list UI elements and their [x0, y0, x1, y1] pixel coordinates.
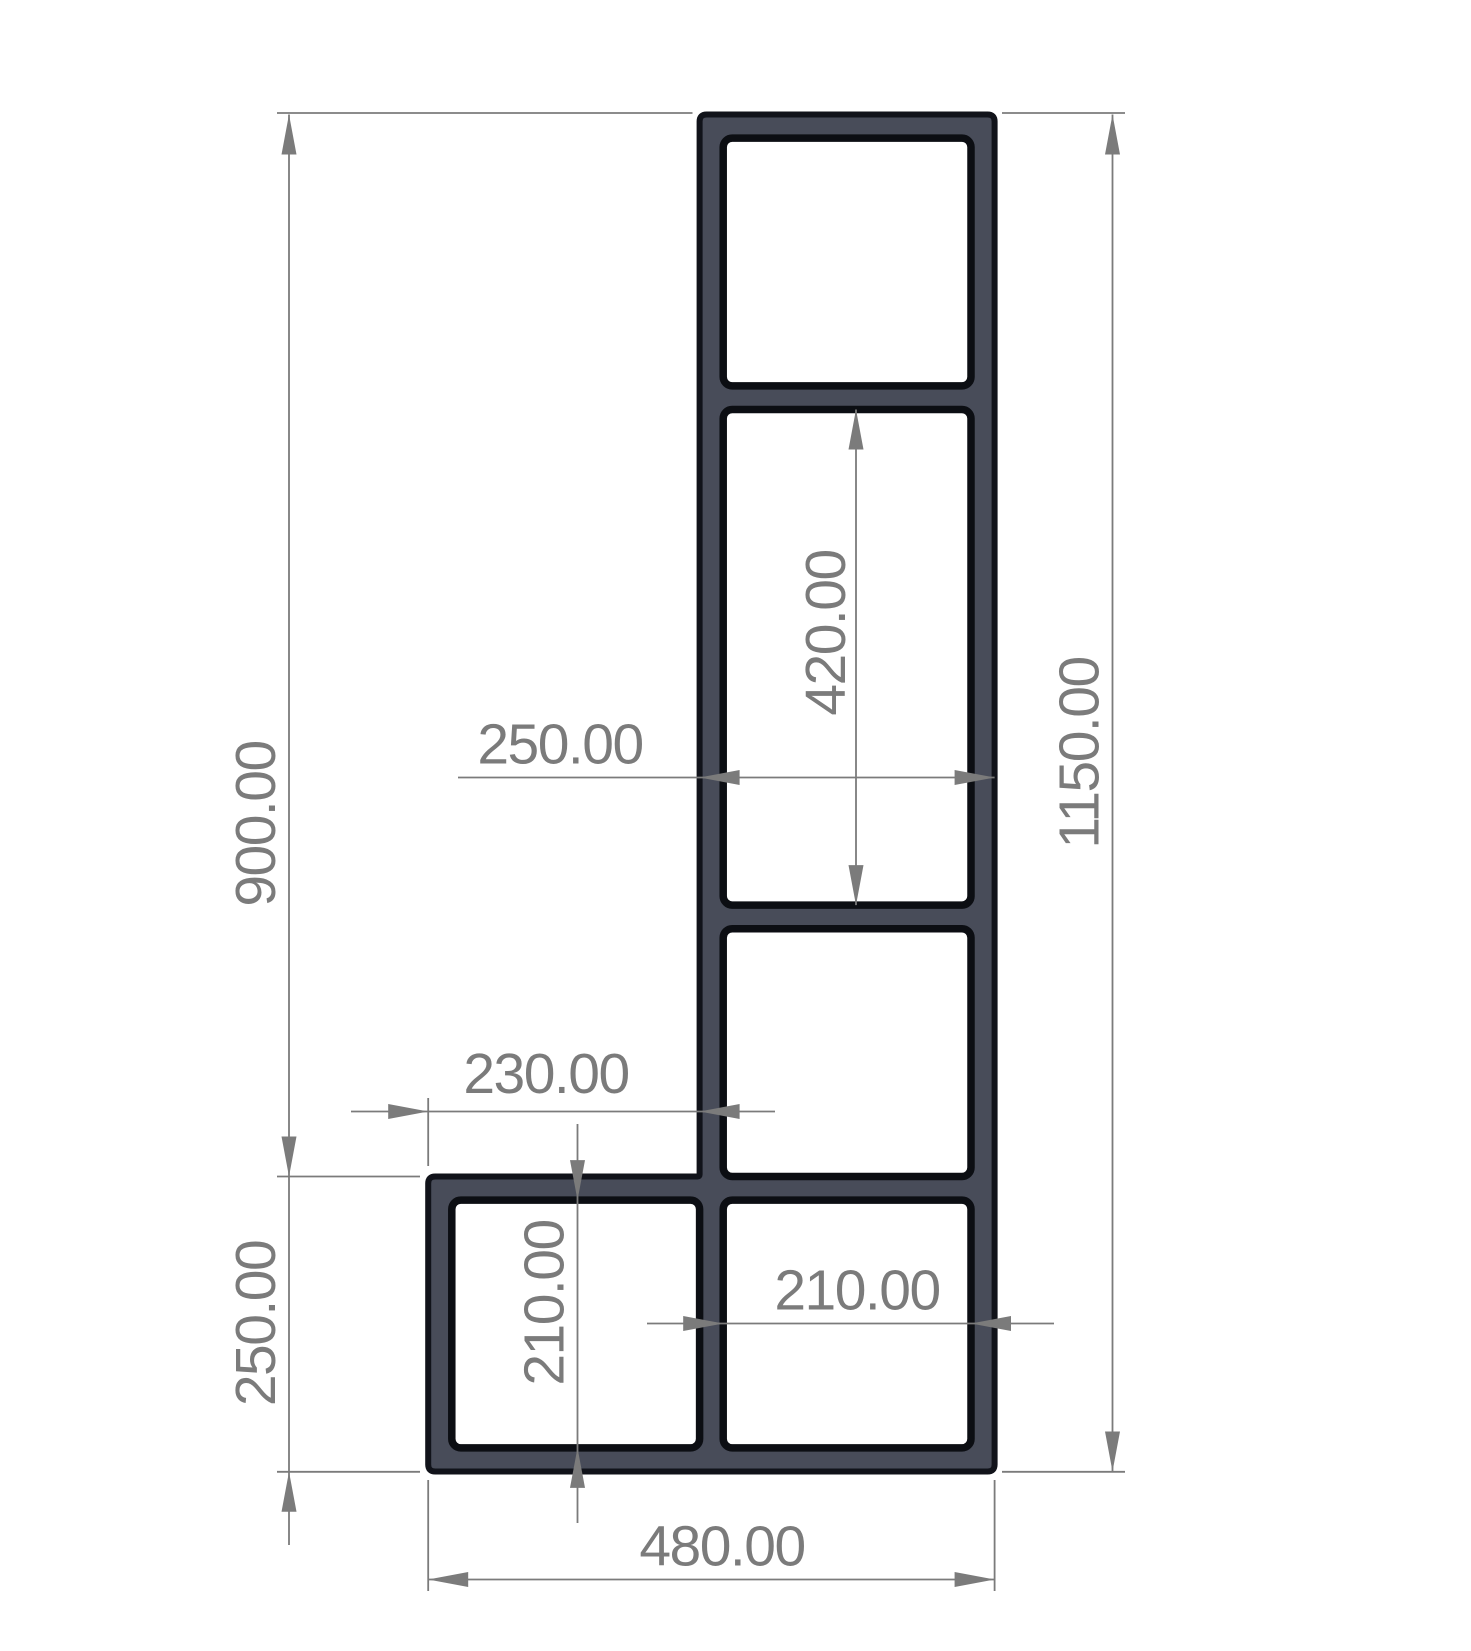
svg-text:210.00: 210.00 [774, 1259, 939, 1323]
svg-text:900.00: 900.00 [224, 741, 288, 906]
svg-text:1150.00: 1150.00 [1048, 657, 1112, 848]
svg-text:250.00: 250.00 [477, 713, 642, 777]
svg-text:420.00: 420.00 [794, 550, 858, 715]
svg-text:230.00: 230.00 [463, 1042, 628, 1106]
svg-text:480.00: 480.00 [639, 1515, 804, 1579]
svg-text:250.00: 250.00 [224, 1241, 288, 1406]
svg-text:210.00: 210.00 [513, 1220, 577, 1385]
